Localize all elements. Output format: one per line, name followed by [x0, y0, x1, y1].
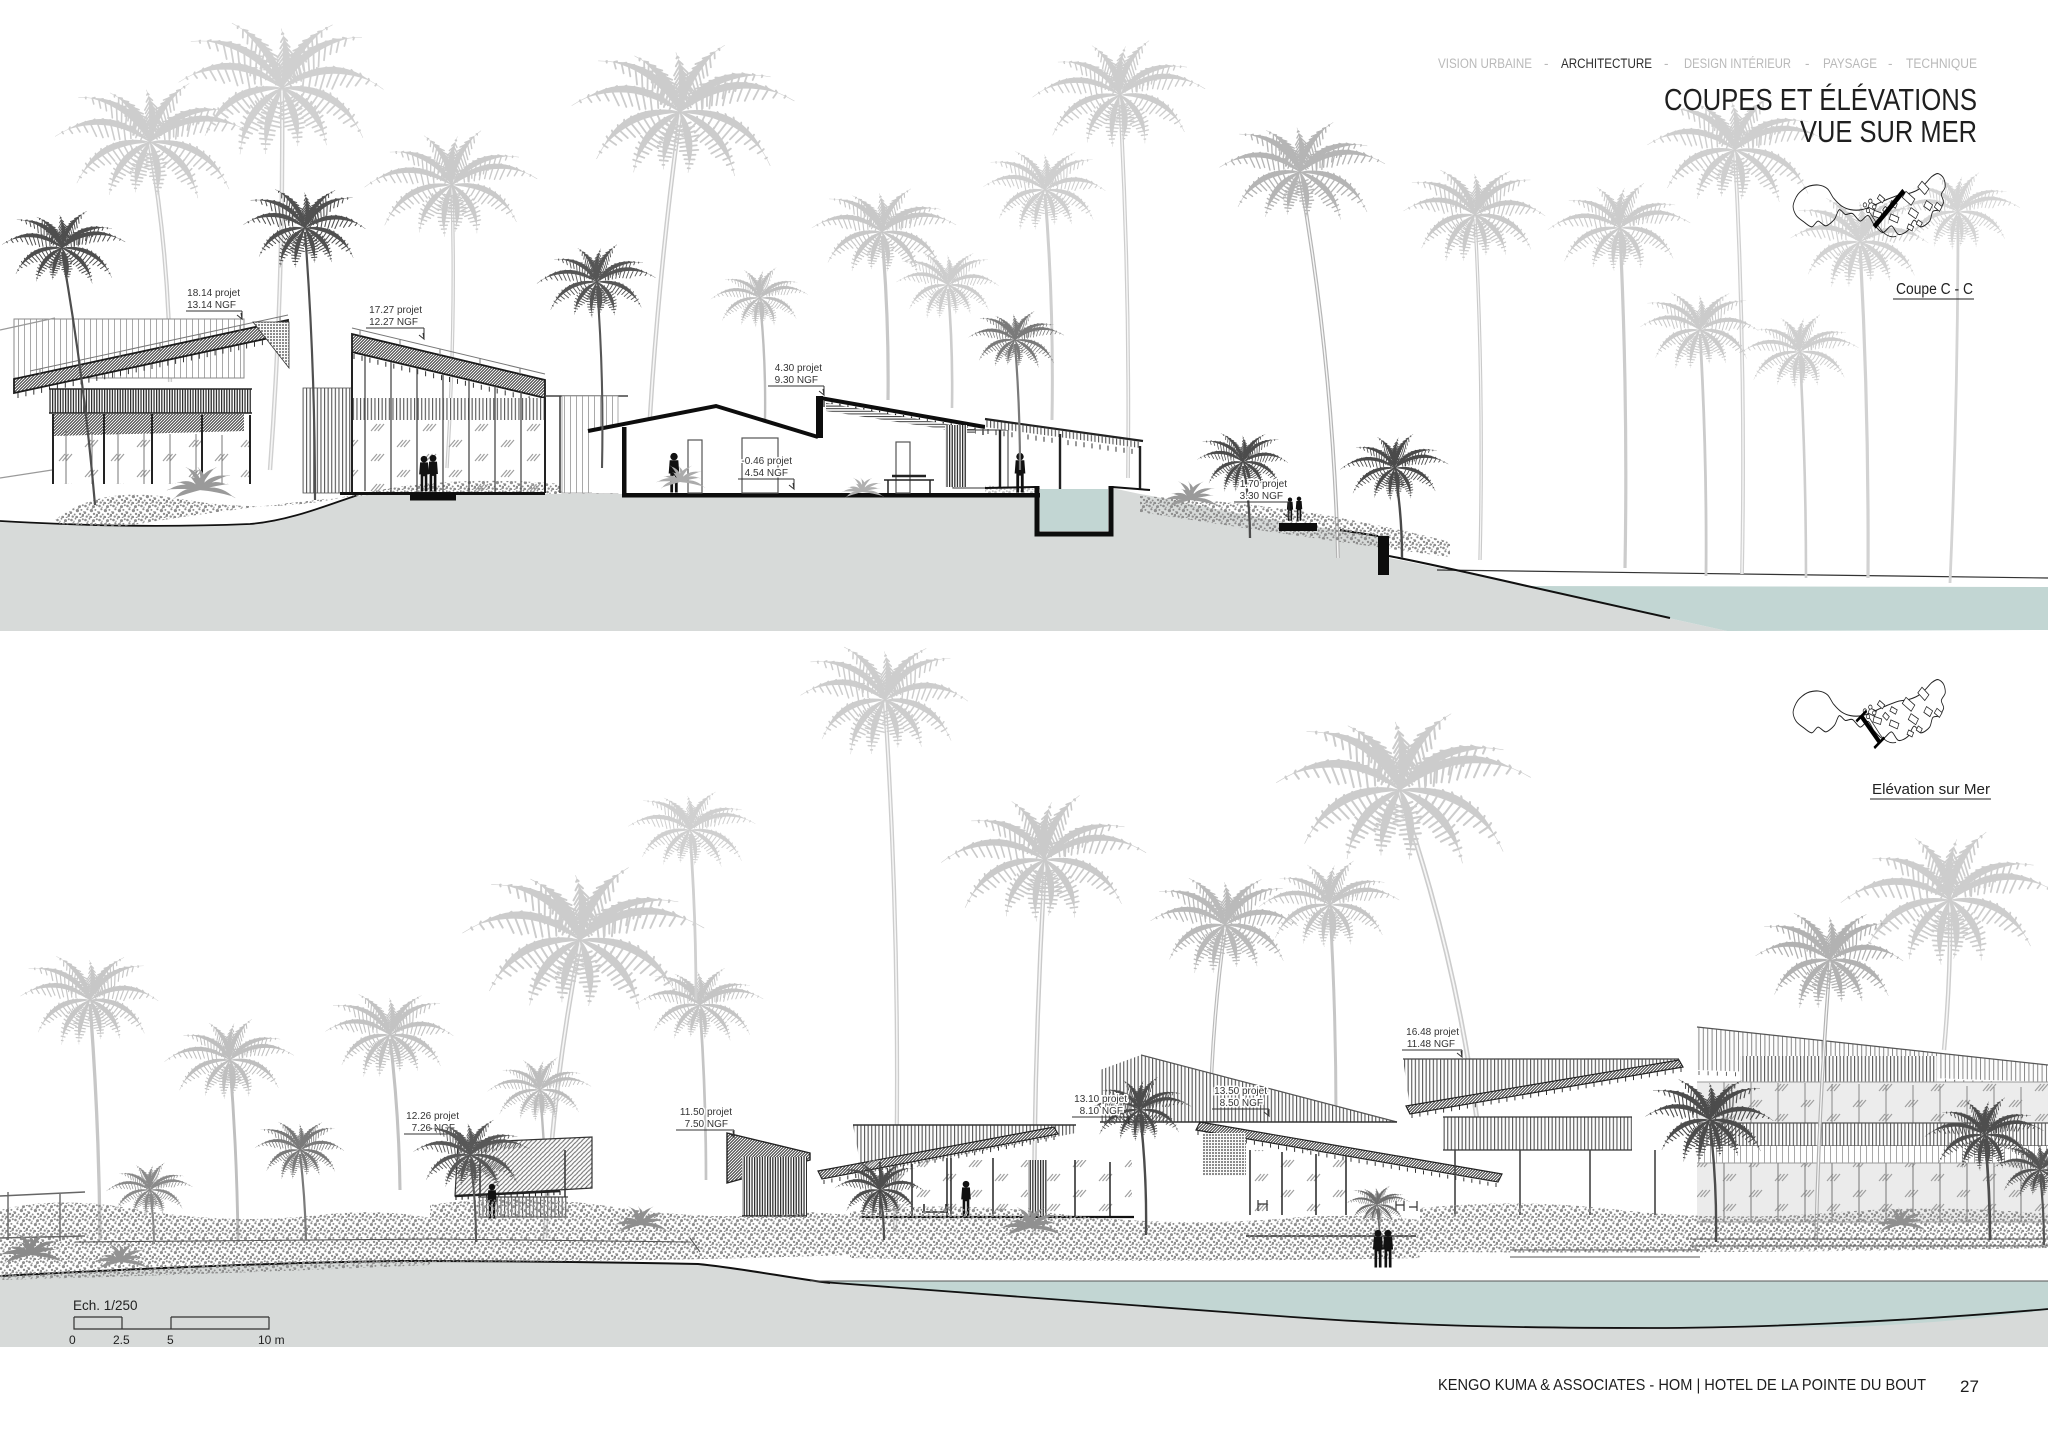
- svg-text:10 m: 10 m: [258, 1333, 285, 1347]
- svg-text:PAYSAGE: PAYSAGE: [1823, 56, 1877, 71]
- svg-text:13.50 projet: 13.50 projet: [1214, 1086, 1267, 1097]
- svg-text:0: 0: [69, 1333, 76, 1347]
- svg-text:8.10 NGF: 8.10 NGF: [1080, 1106, 1123, 1117]
- svg-text:12.27 NGF: 12.27 NGF: [369, 317, 418, 328]
- svg-text:COUPES ET ÉLÉVATIONS: COUPES ET ÉLÉVATIONS: [1664, 82, 1977, 117]
- svg-text:8.50 NGF: 8.50 NGF: [1220, 1098, 1263, 1109]
- svg-text:18.14 projet: 18.14 projet: [187, 288, 240, 299]
- svg-text:Ech. 1/250: Ech. 1/250: [73, 1298, 138, 1313]
- svg-text:11.50 projet: 11.50 projet: [680, 1107, 732, 1118]
- svg-text:Coupe C - C: Coupe C - C: [1896, 281, 1973, 298]
- svg-text:7.50 NGF: 7.50 NGF: [685, 1119, 728, 1130]
- svg-text:TECHNIQUE: TECHNIQUE: [1906, 56, 1977, 71]
- svg-text:13.10 projet: 13.10 projet: [1074, 1094, 1127, 1105]
- svg-text:4.30 projet: 4.30 projet: [775, 363, 822, 374]
- svg-text:VISION URBAINE: VISION URBAINE: [1438, 56, 1532, 71]
- svg-text:DESIGN INTÉRIEUR: DESIGN INTÉRIEUR: [1684, 56, 1791, 71]
- svg-text:-: -: [1888, 56, 1893, 71]
- svg-text:KENGO KUMA & ASSOCIATES - HO: KENGO KUMA & ASSOCIATES - HOM | HOTEL DE…: [1438, 1377, 1926, 1394]
- svg-text:1.70 projet: 1.70 projet: [1240, 479, 1287, 490]
- svg-text:-: -: [1664, 56, 1669, 71]
- svg-text:3.30 NGF: 3.30 NGF: [1240, 491, 1283, 502]
- svg-text:12.26 projet: 12.26 projet: [406, 1111, 459, 1122]
- svg-text:9.30 NGF: 9.30 NGF: [775, 375, 818, 386]
- svg-text:2.5: 2.5: [113, 1333, 130, 1347]
- svg-text:16.48 projet: 16.48 projet: [1406, 1027, 1459, 1038]
- svg-text:-0.46 projet: -0.46 projet: [741, 456, 792, 467]
- svg-text:ARCHITECTURE: ARCHITECTURE: [1561, 56, 1652, 71]
- svg-text:4.54 NGF: 4.54 NGF: [745, 468, 788, 479]
- svg-text:13.14 NGF: 13.14 NGF: [187, 300, 236, 311]
- svg-text:17.27 projet: 17.27 projet: [369, 305, 422, 316]
- svg-text:5: 5: [167, 1333, 174, 1347]
- svg-text:VUE SUR MER: VUE SUR MER: [1800, 114, 1977, 149]
- svg-text:11.48 NGF: 11.48 NGF: [1407, 1039, 1455, 1050]
- svg-text:27: 27: [1960, 1377, 1979, 1396]
- svg-text:-: -: [1544, 56, 1549, 71]
- svg-text:-: -: [1805, 56, 1810, 71]
- svg-text:Elévation sur Mer: Elévation sur Mer: [1872, 782, 1990, 798]
